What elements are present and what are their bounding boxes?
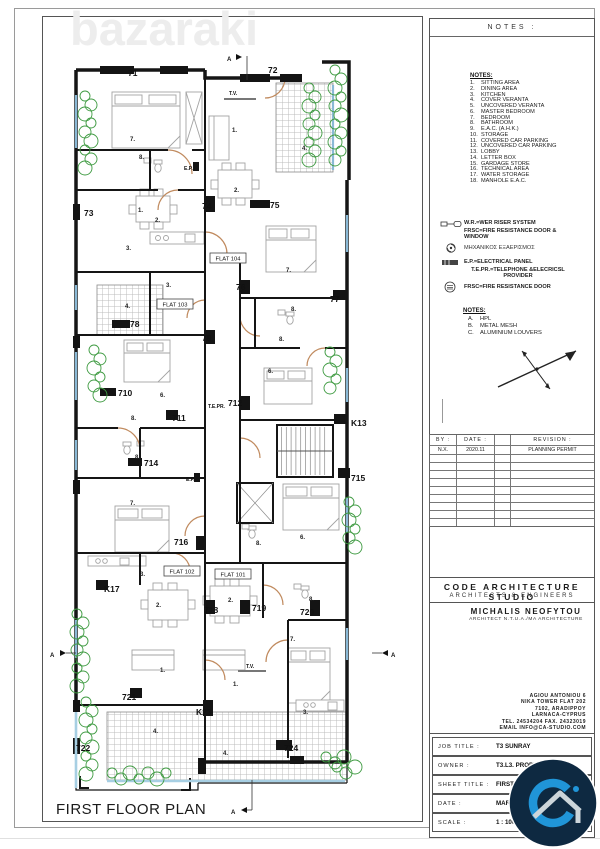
svg-text:719: 719	[252, 603, 266, 613]
fan-icon	[446, 243, 456, 253]
svg-text:716: 716	[174, 537, 188, 547]
notes-legend-list: NOTES: 1.SITTING AREA2.DINING AREA3.KITC…	[470, 73, 590, 185]
revision-date: 2020.11	[456, 446, 494, 454]
svg-text:6.: 6.	[160, 393, 165, 399]
svg-text:76: 76	[236, 282, 246, 292]
svg-text:2.: 2.	[234, 188, 239, 194]
svg-text:712: 712	[228, 398, 242, 408]
ep-label: E.P.	[186, 477, 195, 483]
toilet	[286, 312, 294, 324]
svg-text:4.: 4.	[302, 146, 307, 152]
revision-by: N.X.	[430, 446, 456, 454]
architect-name: MICHALIS NEOFYTOU	[458, 607, 594, 616]
svg-text:K17: K17	[104, 584, 120, 594]
studio-name: CODE ARCHITECTURE STUDIO	[430, 582, 594, 602]
notes-header: NOTES :	[430, 19, 594, 37]
svg-text:7.: 7.	[286, 268, 291, 274]
legend-wr: W.R.=WER RISER SYSTEM	[464, 220, 536, 226]
revision-empty-row	[430, 486, 594, 494]
divider	[430, 602, 594, 603]
bed	[115, 506, 169, 552]
svg-text:75: 75	[270, 200, 280, 210]
svg-text:1.: 1.	[160, 668, 165, 674]
svg-text:77: 77	[330, 294, 340, 304]
material-item: A.HPL	[468, 316, 491, 322]
electrical-panel-icon	[442, 259, 460, 266]
svg-text:8.: 8.	[256, 541, 261, 547]
svg-text:4.: 4.	[153, 729, 158, 735]
divider	[430, 577, 594, 578]
bed	[283, 484, 339, 530]
bazaraki-watermark: bazaraki	[70, 1, 258, 56]
svg-text:2.: 2.	[228, 598, 233, 604]
svg-text:720: 720	[300, 607, 314, 617]
svg-text:K23: K23	[196, 707, 212, 717]
svg-text:711: 711	[172, 413, 186, 423]
legend-frsc-window: FRSC=FIRE RESISTANCE DOOR & WINDOW	[464, 228, 568, 241]
bed	[112, 92, 180, 148]
ep-label: E.P.	[184, 166, 193, 172]
svg-text:710: 710	[118, 388, 132, 398]
title-block-panel: NOTES : NOTES: 1.SITTING AREA2.DINING AR…	[429, 18, 595, 838]
svg-text:718: 718	[204, 605, 218, 615]
scale-tick	[442, 399, 443, 423]
svg-text:1.: 1.	[233, 682, 238, 688]
revision-by-header: BY :	[430, 435, 456, 445]
svg-text:78: 78	[130, 319, 140, 329]
svg-text:71: 71	[128, 68, 138, 78]
svg-text:2.: 2.	[156, 603, 161, 609]
svg-text:79: 79	[202, 333, 212, 343]
legend-ep: E.P.=ELECTRICAL PANEL	[464, 259, 533, 265]
note-item: 18.MANHOLE E.A.C.	[470, 179, 590, 185]
svg-text:8.: 8.	[131, 416, 136, 422]
kitchen-counter	[150, 232, 204, 244]
notes-title: NOTES:	[470, 73, 590, 79]
kitchen-counter	[88, 556, 146, 566]
elevator-shaft	[237, 483, 273, 523]
furniture	[88, 92, 344, 711]
svg-text:7.: 7.	[130, 137, 135, 143]
tv-label: T.V.	[229, 91, 238, 97]
svg-text:A: A	[227, 57, 232, 63]
svg-text:8.: 8.	[279, 337, 284, 343]
wardrobe	[186, 92, 202, 144]
flat-label: FLAT 103	[163, 303, 188, 309]
sofa	[132, 650, 174, 670]
material-item: B.METAL MESH	[468, 323, 517, 329]
svg-text:715: 715	[351, 473, 365, 483]
address-line: EMAIL INFO@CA-STUDIO.COM	[430, 725, 586, 731]
divider	[430, 733, 594, 734]
svg-text:7.: 7.	[130, 501, 135, 507]
svg-text:7.: 7.	[290, 637, 295, 643]
bed	[124, 340, 170, 382]
revision-header: REVISION :	[510, 435, 594, 445]
svg-text:73: 73	[84, 208, 94, 218]
revision-empty-row	[430, 510, 594, 518]
dining-table	[141, 583, 195, 627]
dining-table	[211, 163, 259, 205]
revision-table: BY : DATE : REVISION : N.X. 2020.11 PLAN…	[429, 434, 595, 527]
architect-subtitle: ARCHITECT N.T.U.A./MA ARCHITECTURE	[458, 617, 594, 622]
svg-text:A: A	[231, 810, 236, 816]
revision-empty-row	[430, 462, 594, 470]
electrical-panel-box	[194, 473, 200, 482]
sofa	[209, 116, 229, 160]
flat-label: FLAT 101	[221, 573, 246, 579]
svg-text:74: 74	[202, 201, 212, 211]
svg-text:721: 721	[122, 692, 136, 702]
svg-text:3.: 3.	[140, 572, 145, 578]
toilet	[154, 160, 162, 172]
revision-date-header: DATE :	[456, 435, 494, 445]
revision-empty-row	[430, 454, 594, 462]
revision-empty-row	[430, 478, 594, 486]
svg-text:4.: 4.	[223, 751, 228, 757]
plan-title: FIRST FLOOR PLAN	[56, 801, 206, 818]
legend-tepr: T.E.PR.=TELEPHONE &ELECRICSL PROVIDER	[464, 267, 572, 280]
svg-text:72: 72	[268, 65, 278, 75]
svg-text:A: A	[50, 653, 55, 659]
bed	[288, 648, 330, 703]
svg-text:2.: 2.	[155, 218, 160, 224]
wr-riser-icon	[440, 220, 462, 228]
dining-table	[129, 189, 177, 229]
svg-text:6.: 6.	[268, 369, 273, 375]
toilet	[301, 586, 309, 598]
frsc-door-icon	[444, 281, 456, 293]
svg-text:714: 714	[144, 458, 158, 468]
revision-description: PLANNING PERMIT	[510, 446, 594, 454]
tv-label: T.V.	[246, 664, 255, 670]
svg-text:3.: 3.	[303, 710, 308, 716]
electrical-panel-box	[193, 162, 199, 171]
flat-label: FLAT 104	[216, 257, 242, 263]
revision-empty-row	[430, 494, 594, 502]
materials-notes-title: NOTES:	[463, 308, 486, 314]
material-item: C.ALUMINIUM LOUVERS	[468, 330, 542, 336]
legend-fan: ΜΗΧΑΝΙΚΟΣ ΕΞΑΕΡΙΣΜΟΣ	[464, 245, 535, 251]
revision-empty-row	[430, 502, 594, 510]
bed	[266, 226, 316, 272]
drawing-sheet: FLAT 104 FLAT 103 FLAT 102 FLAT 101 71 7…	[0, 0, 600, 849]
revision-empty-row	[430, 470, 594, 478]
flat-label: FLAT 102	[170, 570, 195, 576]
north-arrow-compass	[492, 341, 584, 403]
svg-text:A: A	[391, 653, 396, 659]
tepr-label: T.E.PR.	[208, 404, 226, 410]
svg-text:3.: 3.	[126, 246, 131, 252]
svg-text:K13: K13	[351, 418, 367, 428]
svg-text:724: 724	[284, 743, 298, 753]
svg-text:8.: 8.	[291, 307, 296, 313]
svg-text:3.: 3.	[166, 283, 171, 289]
svg-text:1.: 1.	[232, 128, 237, 134]
svg-text:6.: 6.	[300, 535, 305, 541]
svg-text:1.: 1.	[138, 208, 143, 214]
legend-frsc-door: FRSC=FIRE RESISTANCE DOOR	[464, 284, 551, 290]
studio-subtitle: ARCHITECTS & ENGINEERS	[430, 593, 594, 599]
studio-address: AGIOU ANTONIOU 6NIKA TOWER FLAT 2027102,…	[430, 693, 586, 731]
svg-text:8.: 8.	[135, 455, 140, 461]
svg-text:8.: 8.	[309, 597, 314, 603]
revision-empty-row	[430, 518, 594, 526]
svg-text:4.: 4.	[125, 304, 130, 310]
svg-text:8.: 8.	[139, 155, 144, 161]
svg-text:722: 722	[76, 743, 90, 753]
toilet	[123, 442, 131, 454]
studio-logo	[506, 753, 600, 849]
